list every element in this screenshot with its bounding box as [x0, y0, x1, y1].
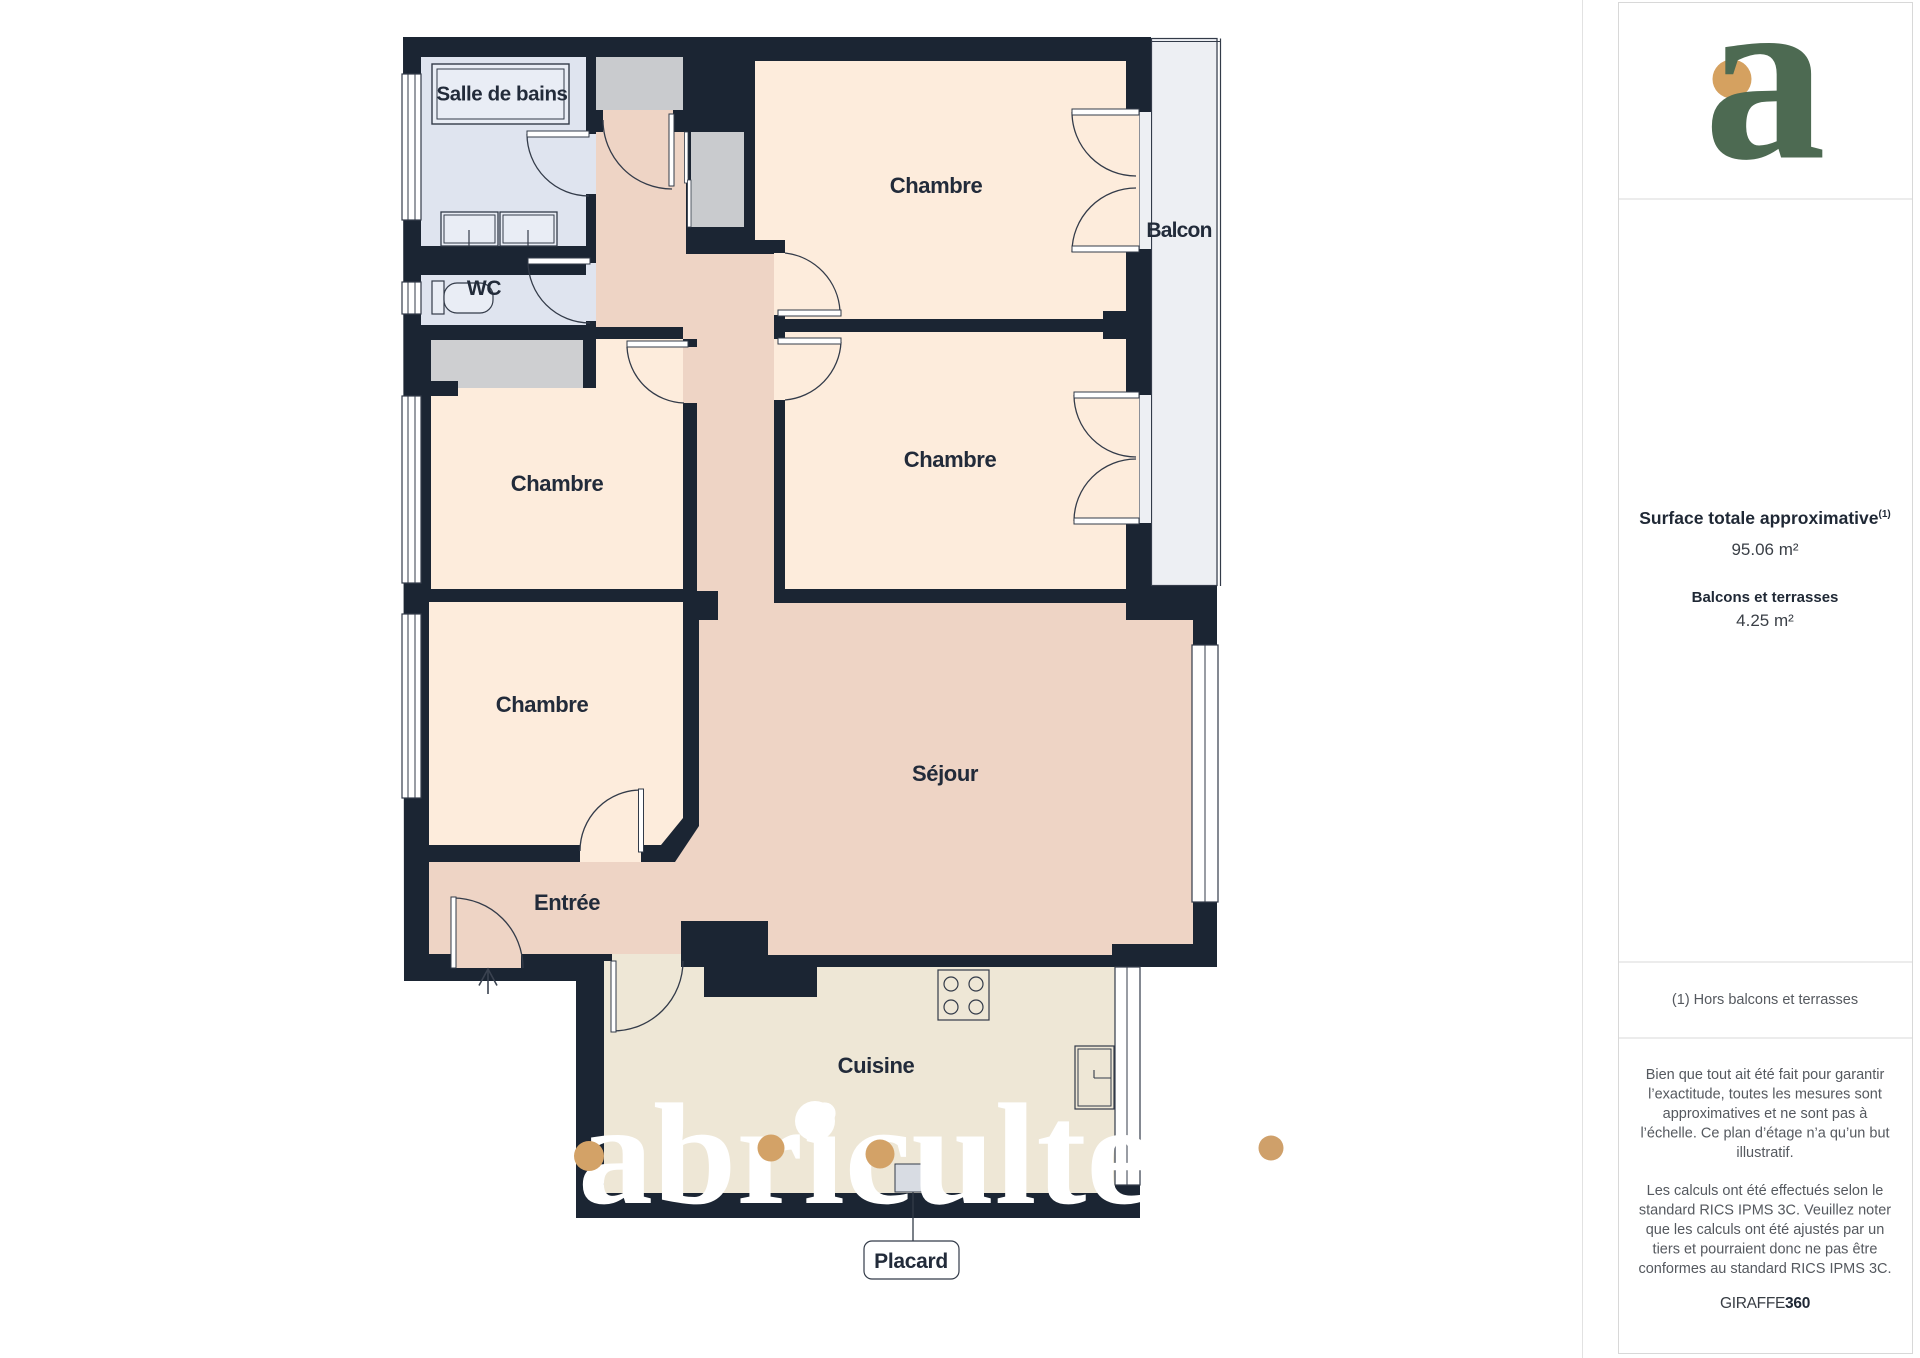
svg-text:abriculte: abriculte	[578, 1075, 1153, 1235]
svg-text:Balcons et terrasses: Balcons et terrasses	[1692, 589, 1839, 606]
svg-text:Chambre: Chambre	[890, 173, 983, 198]
svg-text:Chambre: Chambre	[904, 447, 997, 472]
svg-text:que les calculs ont été ajusté: que les calculs ont été ajustés par un	[1646, 1222, 1885, 1238]
svg-text:4.25 m²: 4.25 m²	[1736, 611, 1794, 630]
svg-text:Surface totale approximative(1: Surface totale approximative(1)	[1639, 508, 1890, 528]
svg-text:l’échelle. Ce plan d’étage n’a: l’échelle. Ce plan d’étage n’a qu’un but	[1640, 1126, 1889, 1142]
svg-text:Les calculs ont été effectués: Les calculs ont été effectués selon le	[1647, 1183, 1884, 1199]
svg-text:Entrée: Entrée	[534, 890, 600, 915]
svg-text:WC: WC	[467, 277, 501, 300]
svg-text:Séjour: Séjour	[912, 761, 979, 786]
svg-text:conformes au standard RICS IPM: conformes au standard RICS IPMS 3C.	[1638, 1261, 1891, 1277]
svg-text:Placard: Placard	[874, 1250, 948, 1273]
svg-text:l’exactitude, toutes les mesur: l’exactitude, toutes les mesures sont	[1648, 1087, 1882, 1103]
svg-text:tiers et pourraient donc ne pa: tiers et pourraient donc ne pas être	[1653, 1242, 1878, 1258]
svg-text:illustratif.: illustratif.	[1736, 1145, 1793, 1161]
svg-text:approximatives et ne sont pas: approximatives et ne sont pas à	[1663, 1106, 1869, 1122]
svg-text:Balcon: Balcon	[1146, 219, 1211, 242]
svg-text:95.06 m²: 95.06 m²	[1731, 540, 1798, 559]
svg-text:Bien que tout ait été fait pou: Bien que tout ait été fait pour garantir	[1646, 1067, 1885, 1083]
svg-text:a: a	[1704, 0, 1826, 211]
svg-text:GIRAFFE360: GIRAFFE360	[1720, 1295, 1810, 1312]
svg-text:(1) Hors balcons et terrasses: (1) Hors balcons et terrasses	[1672, 992, 1858, 1008]
svg-text:Chambre: Chambre	[511, 471, 604, 496]
svg-text:Chambre: Chambre	[496, 692, 589, 717]
svg-text:Salle de bains: Salle de bains	[436, 83, 567, 106]
svg-text:standard RICS IPMS 3C. Veuille: standard RICS IPMS 3C. Veuillez noter	[1639, 1203, 1891, 1219]
